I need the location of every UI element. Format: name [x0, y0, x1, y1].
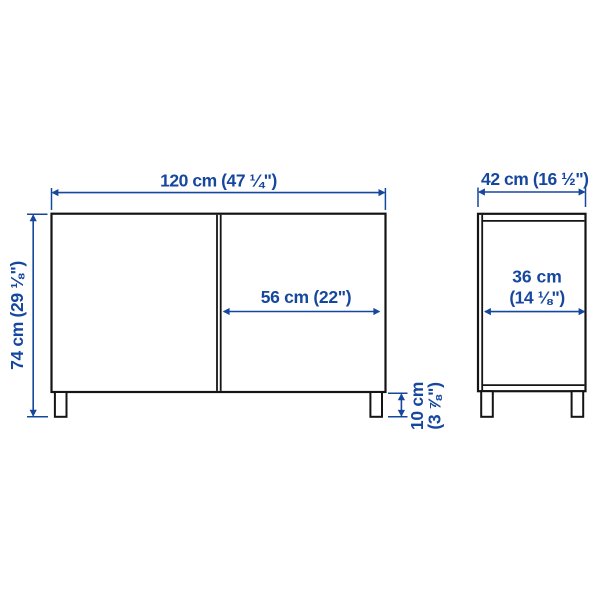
svg-text:36 cm(14 ⅛"): 36 cm(14 ⅛") — [509, 267, 564, 308]
svg-text:10 cm(3 ⅞"): 10 cm(3 ⅞") — [407, 382, 445, 430]
svg-text:42 cm (16 ½"): 42 cm (16 ½") — [481, 169, 589, 189]
svg-text:120 cm (47 ¼"): 120 cm (47 ¼") — [160, 171, 277, 191]
svg-text:74 cm (29 ⅛"): 74 cm (29 ⅛") — [7, 261, 27, 370]
svg-text:56 cm (22"): 56 cm (22") — [261, 287, 352, 307]
